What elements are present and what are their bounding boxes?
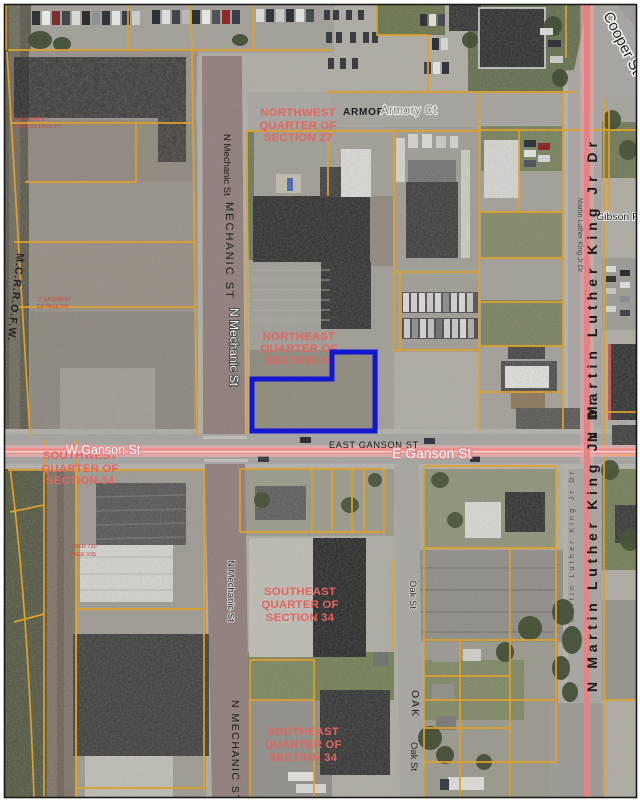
svg-text:N Mechanic St: N Mechanic St (225, 560, 236, 622)
svg-text:MECHANIC ST: MECHANIC ST (223, 202, 235, 300)
svg-text:QUARTER OF: QUARTER OF (260, 343, 337, 355)
svg-text:E Ganson St: E Ganson St (392, 445, 471, 461)
svg-text:Martin Luther King Jr Dr: Martin Luther King Jr Dr (576, 198, 583, 273)
svg-text:SECTION 34: SECTION 34 (266, 612, 335, 624)
svg-text:N Mechanic St: N Mechanic St (227, 308, 241, 387)
svg-text:N MECHANIC ST: N MECHANIC ST (229, 700, 241, 801)
svg-text:QUARTER OF: QUARTER OF (41, 463, 118, 475)
svg-text:QUARTER OF: QUARTER OF (261, 599, 338, 611)
svg-text:Oak St: Oak St (407, 580, 418, 609)
svg-text:QUARTER OF: QUARTER OF (259, 120, 336, 132)
svg-text:SECTION 27: SECTION 27 (264, 132, 332, 144)
svg-text:24 EASEMENT: 24 EASEMENT (13, 117, 47, 123)
svg-text:SECTION 34: SECTION 34 (265, 355, 334, 367)
svg-text:OAK: OAK (409, 690, 421, 718)
svg-text:DE PAGE 370: DE PAGE 370 (37, 304, 69, 310)
svg-text:Gibson Pl: Gibson Pl (596, 211, 640, 223)
svg-text:Oak St: Oak St (408, 742, 419, 771)
svg-text:NORTHWEST: NORTHWEST (260, 107, 335, 119)
svg-text:W Ganson St: W Ganson St (66, 443, 141, 457)
svg-text:PAGE X95: PAGE X95 (70, 552, 96, 558)
svg-text:27 EASEMENT: 27 EASEMENT (37, 297, 71, 303)
svg-text:SECTION 34: SECTION 34 (46, 475, 115, 487)
svg-text:NORTHEAST: NORTHEAST (263, 331, 336, 343)
svg-text:SECTION 34: SECTION 34 (269, 752, 338, 764)
svg-text:SOUTHEAST: SOUTHEAST (267, 726, 339, 738)
svg-text:LIBER 695 PAGE 370: LIBER 695 PAGE 370 (13, 124, 62, 130)
svg-text:QUARTER OF: QUARTER OF (264, 739, 341, 751)
svg-text:SOUTHEAST: SOUTHEAST (264, 586, 336, 598)
svg-text:Armory Ct: Armory Ct (381, 105, 438, 117)
svg-text:LIBER 720: LIBER 720 (70, 544, 97, 550)
svg-text:N Mechanic St: N Mechanic St (221, 134, 232, 196)
